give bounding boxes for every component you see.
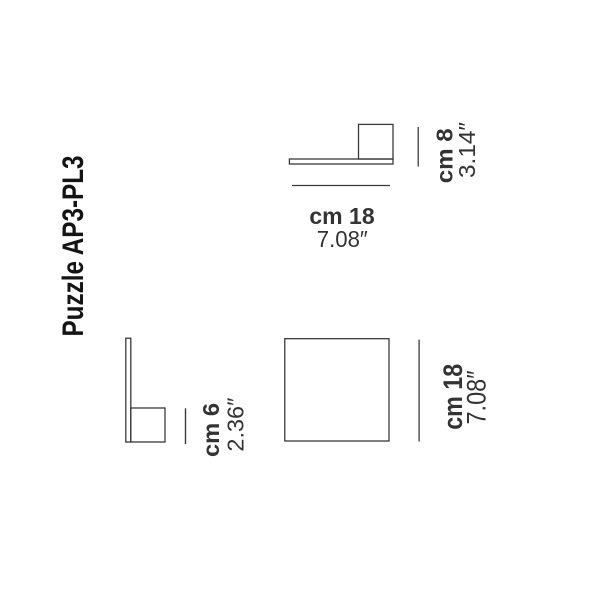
svg-text:7.08″: 7.08″ (317, 226, 368, 252)
svg-text:cm 6: cm 6 (198, 403, 224, 457)
svg-text:2.36″: 2.36″ (222, 398, 248, 452)
svg-text:Puzzle AP3-PL3: Puzzle AP3-PL3 (57, 156, 90, 337)
svg-text:7.08″: 7.08″ (462, 370, 492, 424)
svg-text:3.14″: 3.14″ (454, 122, 480, 178)
